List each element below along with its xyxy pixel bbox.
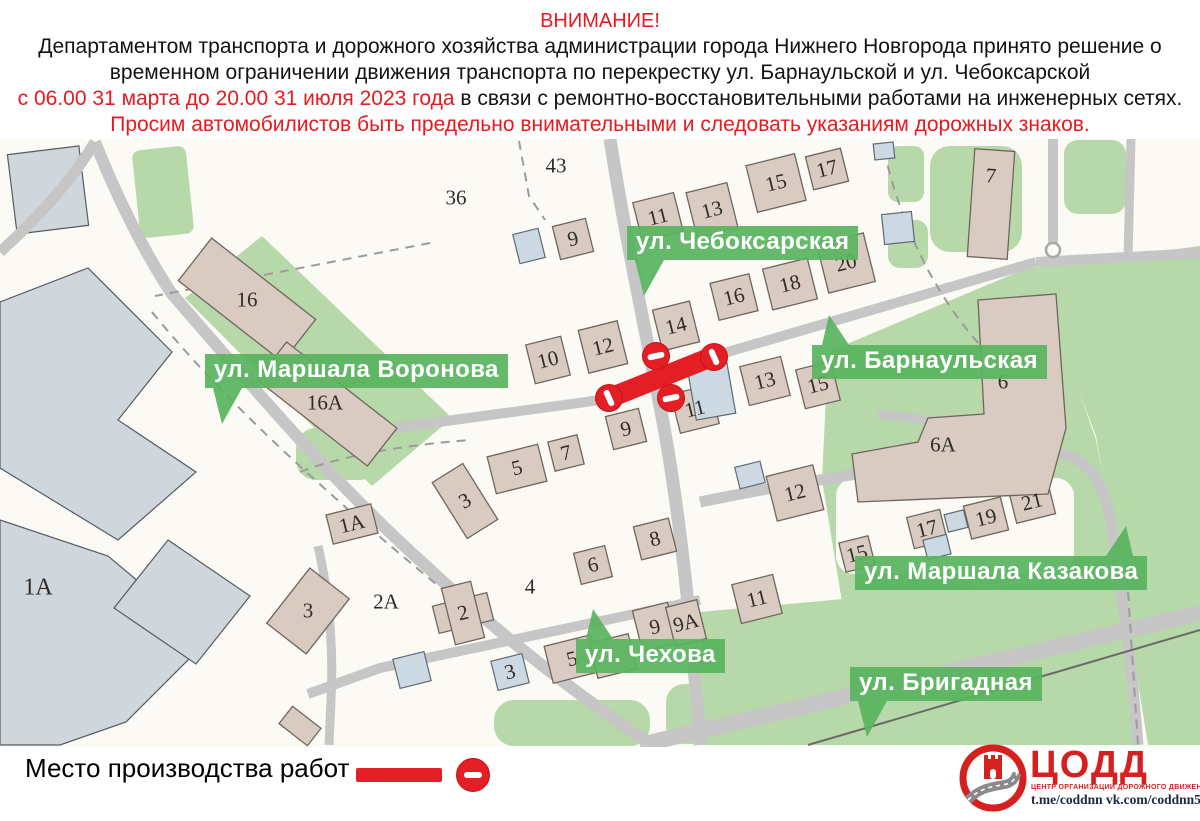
codd-name: ЦОДД xyxy=(1030,746,1149,784)
header-text: с 06.00 31 марта до 20.00 31 июля 2023 г… xyxy=(18,87,455,110)
header-text: Просим автомобилистов быть предельно вни… xyxy=(110,113,1090,136)
city-map xyxy=(0,139,1200,747)
header-line: с 06.00 31 марта до 20.00 31 июля 2023 г… xyxy=(0,86,1200,112)
header-line: временном ограничении движения транспорт… xyxy=(0,60,1200,86)
header-line: Просим автомобилистов быть предельно вни… xyxy=(0,112,1200,138)
codd-links: t.me/coddnn vk.com/coddnn52 xyxy=(1031,792,1200,808)
announcement-header: ВНИМАНИЕ!Департаментом транспорта и доро… xyxy=(0,0,1200,138)
road-closure-announcement: ВНИМАНИЕ!Департаментом транспорта и доро… xyxy=(0,0,1200,821)
codd-tagline: ЦЕНТР ОРГАНИЗАЦИИ ДОРОЖНОГО ДВИЖЕНИЯ xyxy=(1031,784,1200,791)
no-entry-icon xyxy=(456,758,490,792)
header-text: Департаментом транспорта и дорожного хоз… xyxy=(38,35,1161,58)
header-text: временном ограничении движения транспорт… xyxy=(110,61,1091,84)
header-line: Департаментом транспорта и дорожного хоз… xyxy=(0,34,1200,60)
header-line: ВНИМАНИЕ! xyxy=(0,8,1200,34)
header-text: в связи с ремонтно-восстановительными ра… xyxy=(455,87,1183,110)
work-zone-line-sample xyxy=(356,768,442,782)
header-text: ВНИМАНИЕ! xyxy=(540,10,660,32)
no-entry-bar xyxy=(464,772,482,778)
codd-emblem-icon xyxy=(958,740,1028,816)
roundabout xyxy=(1046,243,1060,257)
codd-logo: ЦОДД ЦЕНТР ОРГАНИЗАЦИИ ДОРОЖНОГО ДВИЖЕНИ… xyxy=(958,740,1190,816)
legend-label: Место производства работ - xyxy=(25,753,365,784)
